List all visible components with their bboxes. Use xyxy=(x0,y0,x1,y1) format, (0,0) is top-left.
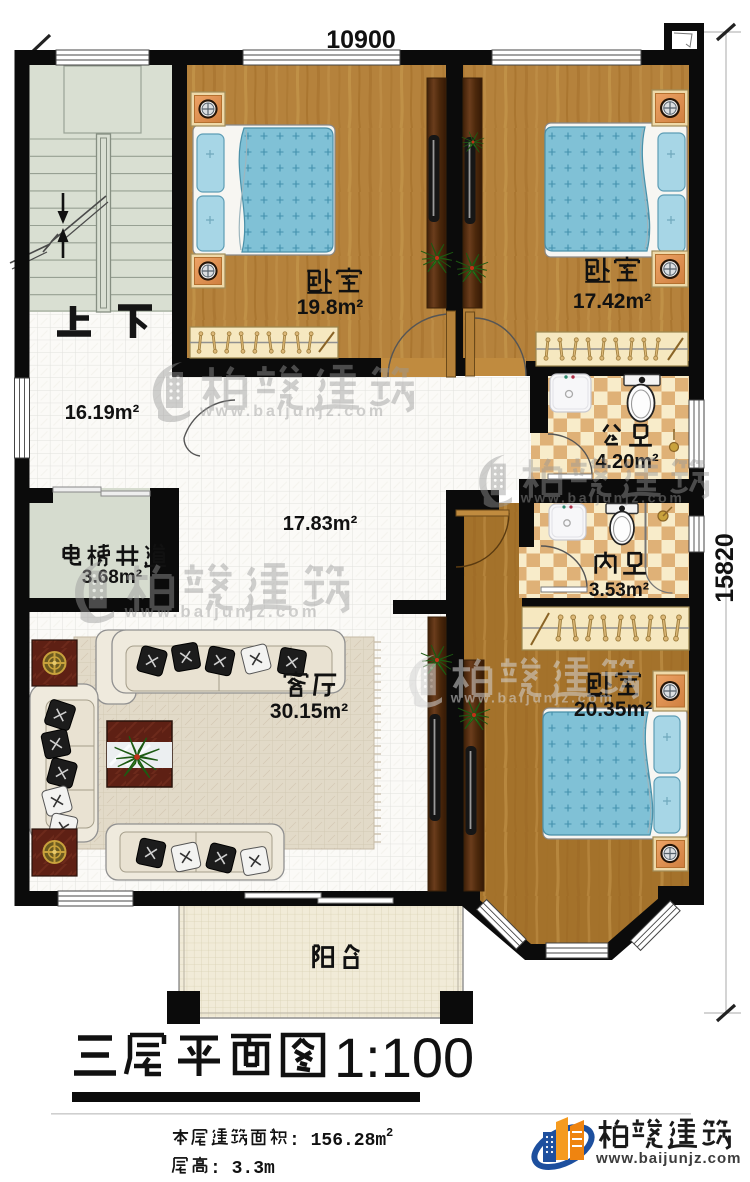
svg-text:www.baijunjz.com: www.baijunjz.com xyxy=(124,602,320,621)
svg-text:1:100: 1:100 xyxy=(334,1026,474,1089)
svg-text:3.53m²: 3.53m² xyxy=(589,580,649,601)
svg-text:: 156.28m: : 156.28m xyxy=(289,1131,386,1151)
svg-text:17.83m²: 17.83m² xyxy=(283,513,358,535)
svg-text:: 3.3m: : 3.3m xyxy=(210,1159,275,1179)
svg-text:16.19m²: 16.19m² xyxy=(65,402,140,424)
svg-text:www.baijunjz.com: www.baijunjz.com xyxy=(199,403,386,420)
svg-text:www.baijunjz.com: www.baijunjz.com xyxy=(450,689,615,705)
svg-text:30.15m²: 30.15m² xyxy=(270,700,348,723)
svg-text:19.8m²: 19.8m² xyxy=(297,296,364,319)
svg-text:17.42m²: 17.42m² xyxy=(573,290,651,313)
svg-text:www.baijunjz.com: www.baijunjz.com xyxy=(520,489,685,505)
svg-text:15820: 15820 xyxy=(711,533,739,603)
svg-text:www.baijunjz.com: www.baijunjz.com xyxy=(595,1150,741,1167)
svg-text:2: 2 xyxy=(386,1126,393,1140)
